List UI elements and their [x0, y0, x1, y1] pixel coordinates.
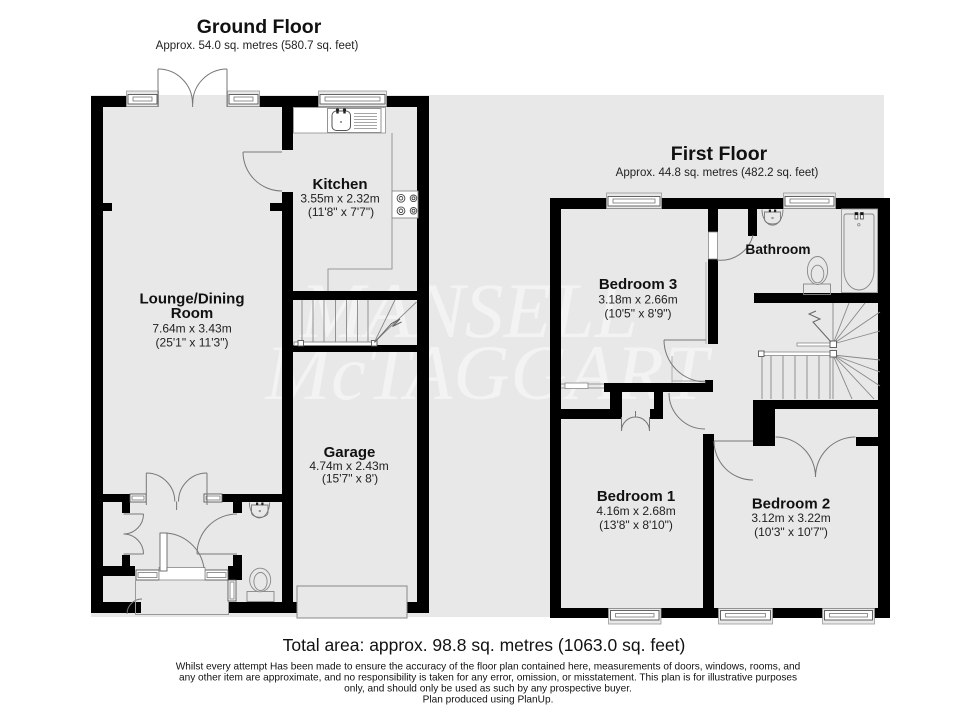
svg-text:only, and should only be used: only, and should only be used as such by…	[344, 684, 632, 695]
svg-text:(15'7" x 8'): (15'7" x 8')	[322, 472, 378, 486]
svg-text:3.12m x 3.22m: 3.12m x 3.22m	[751, 511, 830, 525]
svg-text:Kitchen: Kitchen	[312, 176, 367, 193]
svg-text:Bathroom: Bathroom	[745, 242, 810, 257]
svg-text:3.18m x 2.66m: 3.18m x 2.66m	[598, 293, 677, 307]
svg-text:Approx. 44.8 sq. metres (482.2: Approx. 44.8 sq. metres (482.2 sq. feet)	[616, 167, 819, 179]
svg-text:(11'8" x 7'7"): (11'8" x 7'7")	[308, 205, 374, 219]
svg-text:any other item are approximate: any other item are approximate, and no r…	[179, 673, 797, 684]
svg-text:Bedroom 3: Bedroom 3	[599, 276, 677, 293]
svg-text:Bedroom 1: Bedroom 1	[597, 488, 675, 505]
svg-text:First Floor: First Floor	[671, 143, 768, 165]
svg-text:(10'3" x 10'7"): (10'3" x 10'7")	[754, 525, 828, 539]
svg-text:(13'8" x 8'10"): (13'8" x 8'10")	[599, 518, 673, 532]
svg-text:4.16m x 2.68m: 4.16m x 2.68m	[596, 504, 675, 518]
svg-text:(25'1" x 11'3"): (25'1" x 11'3")	[156, 336, 229, 350]
svg-text:Plan produced using PlanUp.: Plan produced using PlanUp.	[423, 695, 554, 706]
svg-text:Whilst every attempt Has been: Whilst every attempt Has been made to en…	[176, 662, 800, 673]
svg-text:3.55m x 2.32m: 3.55m x 2.32m	[300, 192, 379, 206]
svg-text:Room: Room	[171, 305, 214, 322]
svg-text:7.64m x 3.43m: 7.64m x 3.43m	[152, 322, 231, 336]
svg-text:Bedroom 2: Bedroom 2	[752, 496, 830, 513]
svg-text:(10'5" x 8'9"): (10'5" x 8'9")	[604, 307, 671, 321]
svg-text:Total area: approx. 98.8 sq. m: Total area: approx. 98.8 sq. metres (106…	[283, 635, 686, 655]
svg-text:Ground Floor: Ground Floor	[197, 16, 322, 38]
svg-text:Approx. 54.0 sq. metres (580.7: Approx. 54.0 sq. metres (580.7 sq. feet)	[156, 40, 359, 52]
